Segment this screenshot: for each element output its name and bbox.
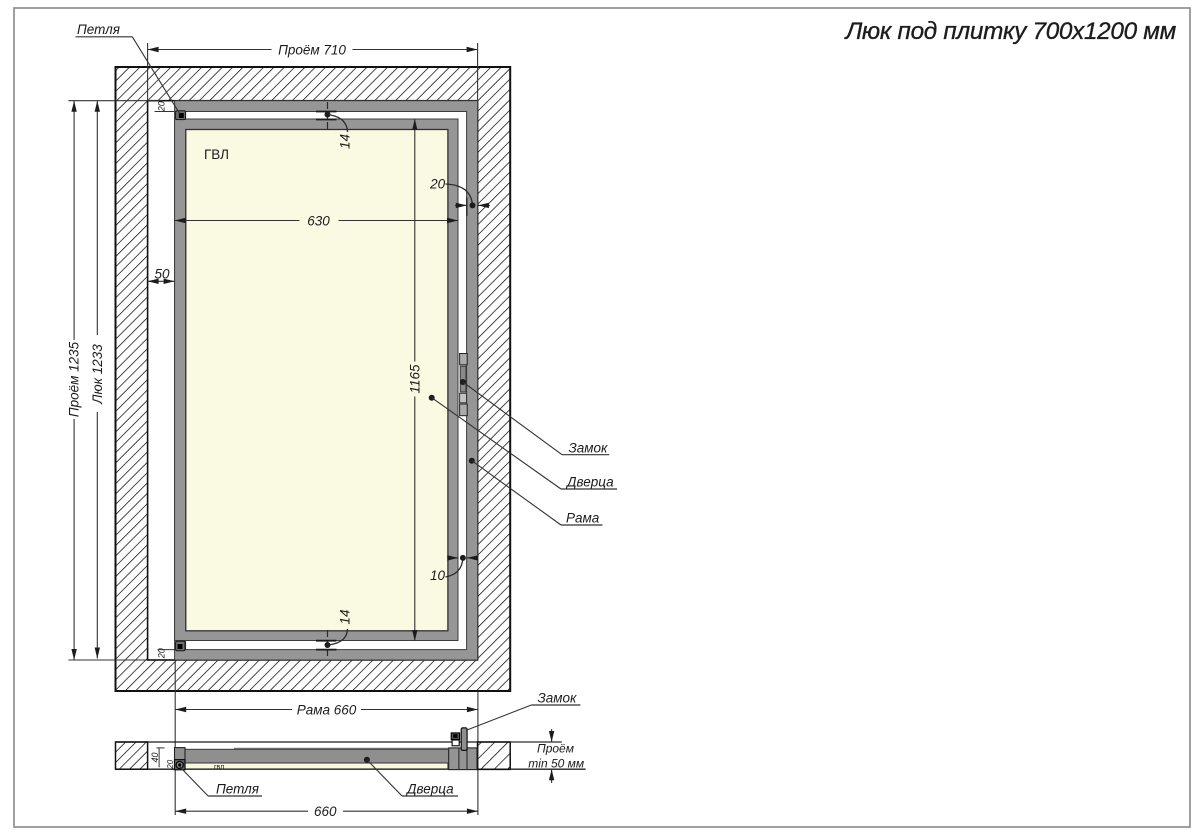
svg-text:Люк 1233: Люк 1233 (90, 344, 105, 405)
svg-text:Замок: Замок (538, 691, 578, 706)
svg-text:Дверца: Дверца (565, 475, 614, 490)
svg-text:14: 14 (338, 609, 353, 624)
svg-text:1165: 1165 (407, 364, 422, 394)
svg-text:20: 20 (429, 176, 446, 191)
svg-text:Дверца: Дверца (405, 782, 454, 797)
svg-text:ГВЛ: ГВЛ (204, 147, 229, 162)
svg-text:630: 630 (307, 214, 330, 229)
svg-text:Проём 710: Проём 710 (278, 43, 346, 58)
svg-text:Люк под плитку 700х1200 мм: Люк под плитку 700х1200 мм (844, 18, 1177, 45)
svg-text:Замок: Замок (569, 441, 609, 456)
svg-text:Петля: Петля (77, 22, 120, 37)
svg-text:min 50 мм: min 50 мм (528, 756, 584, 770)
svg-text:Проём: Проём (537, 741, 574, 755)
svg-text:20: 20 (166, 759, 175, 769)
svg-text:Рама: Рама (566, 511, 600, 526)
svg-text:Петля: Петля (216, 782, 259, 797)
svg-text:660: 660 (314, 804, 337, 819)
svg-text:40: 40 (150, 752, 160, 762)
svg-text:гвл: гвл (214, 764, 224, 771)
svg-text:Проём 1235: Проём 1235 (67, 341, 82, 417)
svg-text:10: 10 (430, 568, 446, 583)
svg-text:Рама 660: Рама 660 (297, 703, 357, 718)
svg-text:14: 14 (338, 134, 353, 149)
svg-text:20: 20 (157, 101, 167, 112)
